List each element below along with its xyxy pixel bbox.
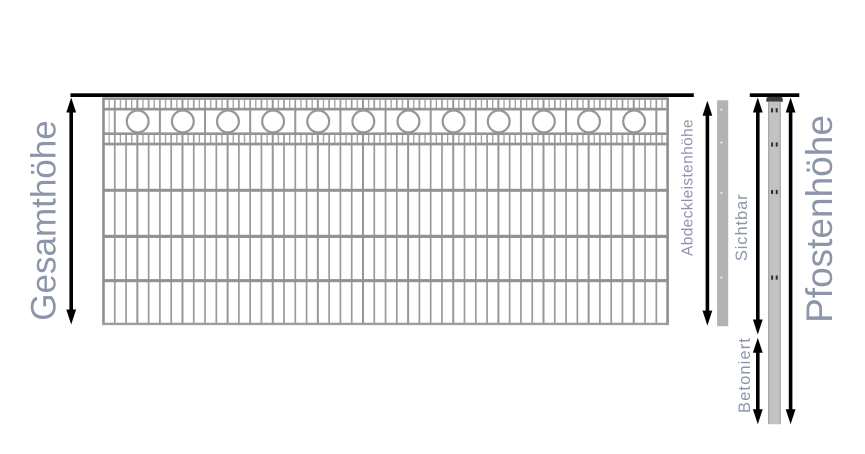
- svg-text:Betoniert: Betoniert: [736, 337, 754, 413]
- svg-text:Sichtbar: Sichtbar: [733, 193, 751, 261]
- svg-text:Pfostenhöhe: Pfostenhöhe: [799, 115, 840, 323]
- svg-text:Abdeckleistenhöhe: Abdeckleistenhöhe: [679, 119, 696, 256]
- svg-text:Gesamthöhe: Gesamthöhe: [24, 120, 63, 320]
